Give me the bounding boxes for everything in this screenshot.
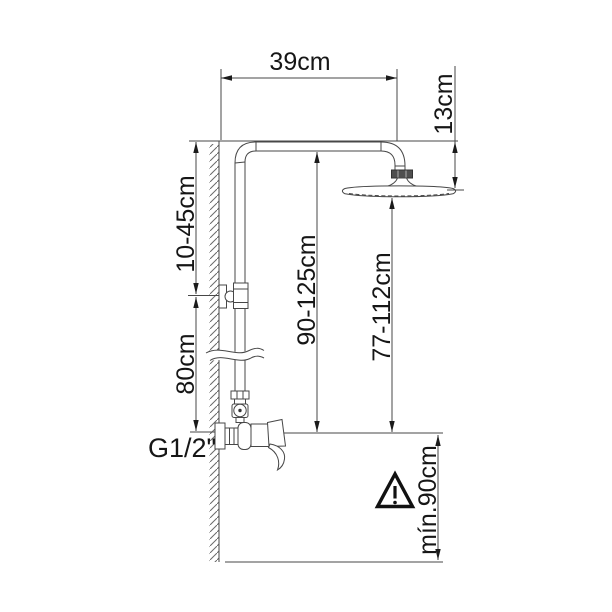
dimension-arm-reach: 39cm bbox=[221, 48, 397, 141]
dimension-column-range: 90-125cm bbox=[293, 152, 321, 432]
dimension-label: 80cm bbox=[172, 333, 200, 394]
bracket-pipe-collar bbox=[234, 283, 249, 309]
connector-pivot-dot bbox=[238, 409, 241, 412]
warning-sign bbox=[378, 474, 413, 507]
warning-exclamation-dot bbox=[393, 501, 397, 505]
thread-label: G1/2" bbox=[148, 433, 216, 463]
connector-nut bbox=[231, 391, 249, 399]
shower-head-mount-cone bbox=[387, 178, 417, 186]
mixer-escutcheon bbox=[238, 423, 251, 450]
dimensions: 39cm 13cm 10-45cm 80cm 90-125cm 77-112cm bbox=[148, 48, 464, 560]
shower-installation-diagram: 39cm 13cm 10-45cm 80cm 90-125cm 77-112cm bbox=[0, 0, 612, 612]
shower-head bbox=[342, 170, 455, 197]
mixer-wall-flange bbox=[215, 423, 225, 449]
dimension-label: 39cm bbox=[269, 48, 330, 76]
dimension-min-clearance: mín.90cm bbox=[414, 435, 442, 560]
shower-head-nut bbox=[392, 170, 413, 178]
dimension-head-offset: 13cm bbox=[430, 66, 464, 190]
diverter-connector bbox=[231, 391, 249, 423]
connector-spacer bbox=[235, 399, 246, 404]
dimension-inlet-height: 80cm bbox=[172, 297, 215, 432]
dimension-label: 13cm bbox=[430, 73, 458, 134]
wall-bracket bbox=[219, 283, 248, 309]
mixer-end-cap bbox=[268, 420, 286, 447]
dimension-label: mín.90cm bbox=[414, 445, 442, 555]
dimension-head-range: 77-112cm bbox=[368, 198, 396, 432]
dimension-label: 77-112cm bbox=[368, 252, 396, 361]
mixer-body bbox=[251, 424, 269, 447]
diagram-canvas: 39cm 13cm 10-45cm 80cm 90-125cm 77-112cm bbox=[0, 0, 612, 612]
shower-column bbox=[206, 142, 456, 470]
connector-neck bbox=[236, 418, 244, 423]
dimension-label: 90-125cm bbox=[293, 234, 321, 345]
mixer-union-nut bbox=[225, 428, 238, 445]
mixer-handle bbox=[269, 444, 285, 470]
dimension-upper-adjust: 10-45cm bbox=[172, 142, 200, 294]
shower-head-disc bbox=[342, 186, 455, 197]
dimension-label: 10-45cm bbox=[172, 175, 200, 272]
mixer-valve bbox=[215, 420, 286, 471]
